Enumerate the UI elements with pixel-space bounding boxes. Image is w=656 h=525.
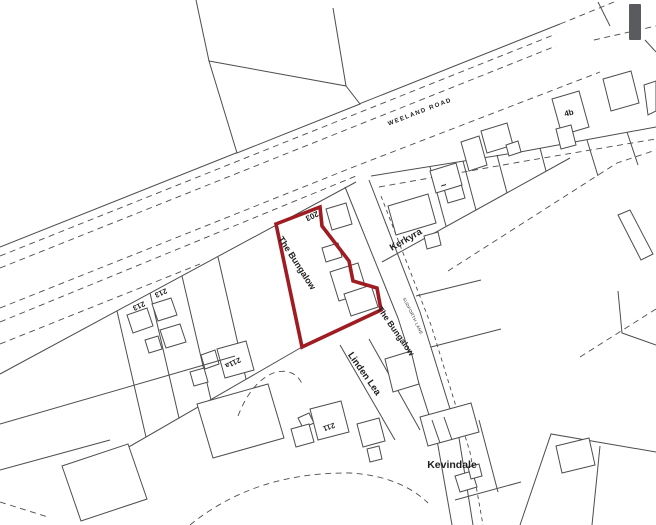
house-outline (644, 81, 656, 115)
large-building (62, 444, 147, 521)
label-the-bungalow-west: The Bungalow (276, 234, 318, 292)
house-outline (461, 136, 487, 171)
east-field (580, 291, 656, 357)
house-outline (357, 418, 385, 447)
plot-divider (431, 329, 501, 347)
house-annex (201, 350, 219, 369)
weeland-road (0, 2, 656, 374)
road-nw-edge-dashed (560, 2, 614, 24)
house-annex (160, 324, 186, 348)
kerkyra-garage (424, 232, 441, 249)
label-road-weeland: WEELAND ROAD (387, 97, 453, 128)
house-annex (190, 368, 208, 386)
boundary-spur-right (333, 8, 346, 86)
plot-divider (540, 148, 546, 171)
boundary-spur-left (196, 0, 209, 61)
label-plot-213-b: 213 (153, 286, 168, 299)
house-203 (326, 203, 352, 230)
house-annex (145, 336, 162, 353)
bottom-right-plot (520, 434, 656, 525)
shed-outline (367, 446, 382, 462)
road-centerline-4 (0, 176, 356, 322)
house-213-a (127, 308, 153, 333)
barn-outline (618, 210, 653, 260)
northwest-plot (196, 0, 360, 153)
house-outline (291, 424, 314, 447)
plot-divider (587, 140, 598, 176)
building-outline (556, 438, 595, 473)
plot-divider (497, 155, 507, 193)
label-linden-lea: Linden Lea (345, 350, 383, 398)
linden-lea-house (385, 351, 419, 392)
kevindale-house (420, 403, 479, 446)
plot-divider (416, 280, 481, 296)
road-corner-dashes (594, 26, 656, 40)
house-211 (310, 401, 349, 440)
field-corner (618, 291, 656, 345)
property-boundary (276, 207, 381, 347)
kerkyra-house (388, 194, 436, 235)
plot-divider (627, 132, 638, 165)
house-outline (603, 71, 639, 111)
field-dashed-curve (580, 309, 656, 357)
field-dashed-curve (190, 473, 428, 525)
boundary-fragment (645, 40, 656, 52)
corner-dashes (0, 502, 48, 517)
map-canvas[interactable]: WEELAND ROAD203The BungalowKerkyra213213… (0, 0, 656, 525)
site-plan-map: WEELAND ROAD203The BungalowKerkyra213213… (0, 0, 656, 525)
label-kevindale: Kevindale (427, 459, 477, 471)
large-field-outline (209, 61, 360, 153)
frontage-houses (382, 2, 656, 271)
scrollbar-thumb[interactable] (629, 4, 641, 40)
plot-divider (479, 420, 498, 492)
